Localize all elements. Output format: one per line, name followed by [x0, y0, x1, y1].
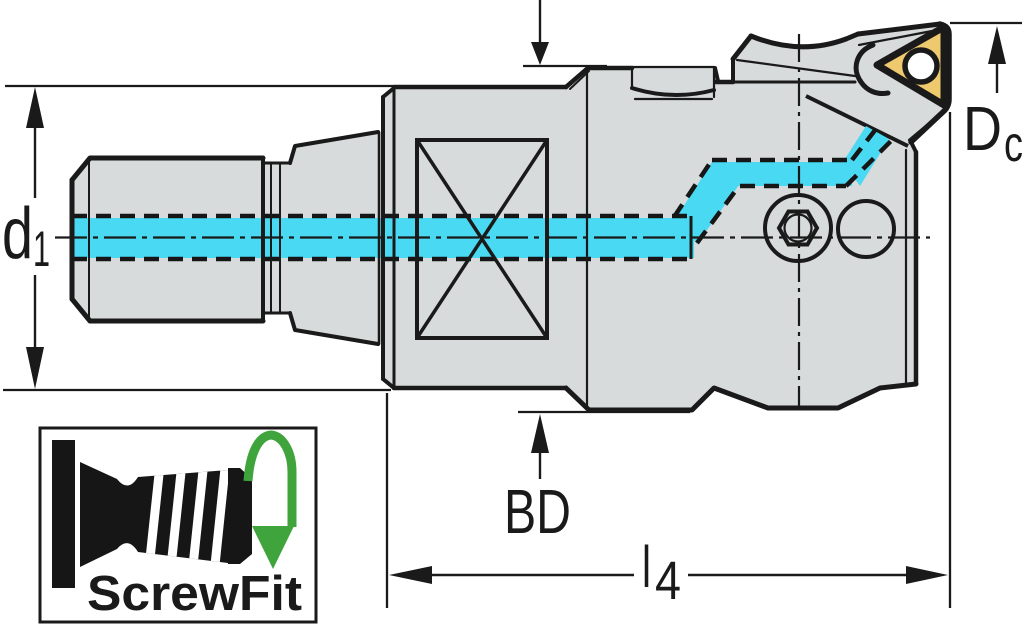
label-l4-sub: 4: [655, 551, 681, 611]
label-d1-sub: 1: [33, 221, 50, 277]
label-dc-sub: c: [1004, 116, 1023, 172]
screwfit-logo: ScrewFit: [40, 428, 316, 622]
label-l4-base: l: [642, 535, 651, 600]
label-dc-base: D: [963, 95, 1002, 164]
technical-drawing-page: d 1 BD l 4 D c ScrewFit: [0, 0, 1024, 626]
label-d1-base: d: [2, 194, 33, 274]
tool-drawing: d 1 BD l 4 D c ScrewFit: [0, 0, 1024, 626]
dimension-dc: [950, 23, 1022, 93]
screwfit-text: ScrewFit: [87, 567, 302, 621]
insert-hole: [905, 50, 937, 82]
label-bd: BD: [504, 478, 571, 547]
